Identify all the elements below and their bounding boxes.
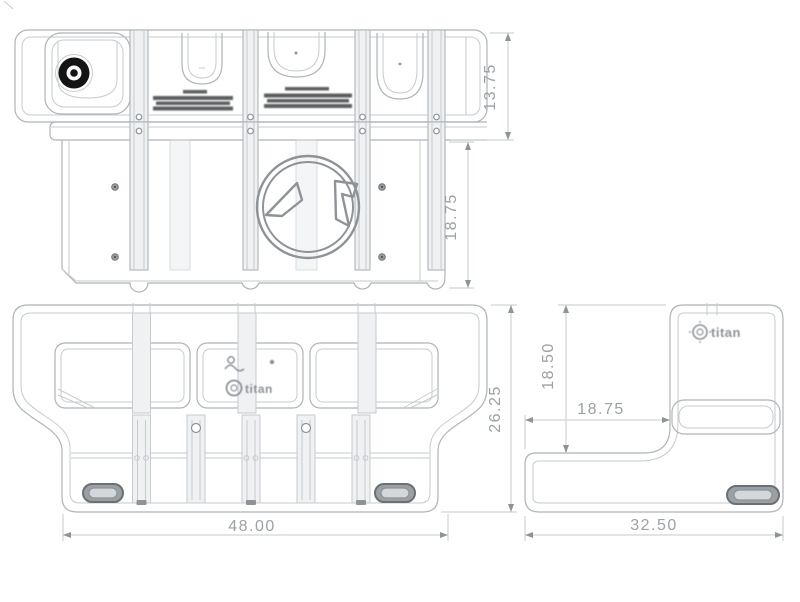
brand-logo-end: titan [689,321,741,343]
recess-pocket-2 [182,33,222,84]
svg-text:26.25: 26.25 [487,385,504,433]
strap-channels-bottom [133,313,377,413]
warning-label-right [264,87,352,108]
svg-text:18.75: 18.75 [577,401,625,418]
fill-cap-pocket [45,33,130,114]
svg-text:13.75: 13.75 [482,63,499,111]
drain-plug-end [727,486,779,504]
side-pocket [672,400,780,434]
bottom-view: titan [13,303,487,512]
svg-text:titan: titan [245,382,273,396]
svg-text:18.50: 18.50 [540,342,557,390]
recess-pocket-4 [377,33,423,99]
dim-end-step: 18.75 [525,401,670,449]
recess-pocket-3 [268,32,325,77]
svg-text:18.75: 18.75 [443,193,460,241]
dim-front-height: 18.75 [443,142,474,288]
svg-text:32.50: 32.50 [630,517,678,534]
front-view [50,122,487,292]
rib-band [170,140,190,270]
drawing-page: titan [0,0,800,602]
corner-mark [4,1,13,9]
end-view: titan [525,303,783,512]
drain-plug-right [375,484,415,502]
svg-text:titan: titan [711,325,741,340]
dim-end-width: 32.50 [525,516,783,541]
svg-text:48.00: 48.00 [228,518,276,535]
dim-overall-width: 48.00 [63,514,448,541]
dim-end-upper-height: 18.50 [540,305,666,453]
drawing-canvas: titan [0,0,800,602]
dim-top-depth: 13.75 [450,33,514,140]
top-view [15,30,487,122]
drain-plug-left [83,484,123,502]
warning-label-left [153,90,233,111]
